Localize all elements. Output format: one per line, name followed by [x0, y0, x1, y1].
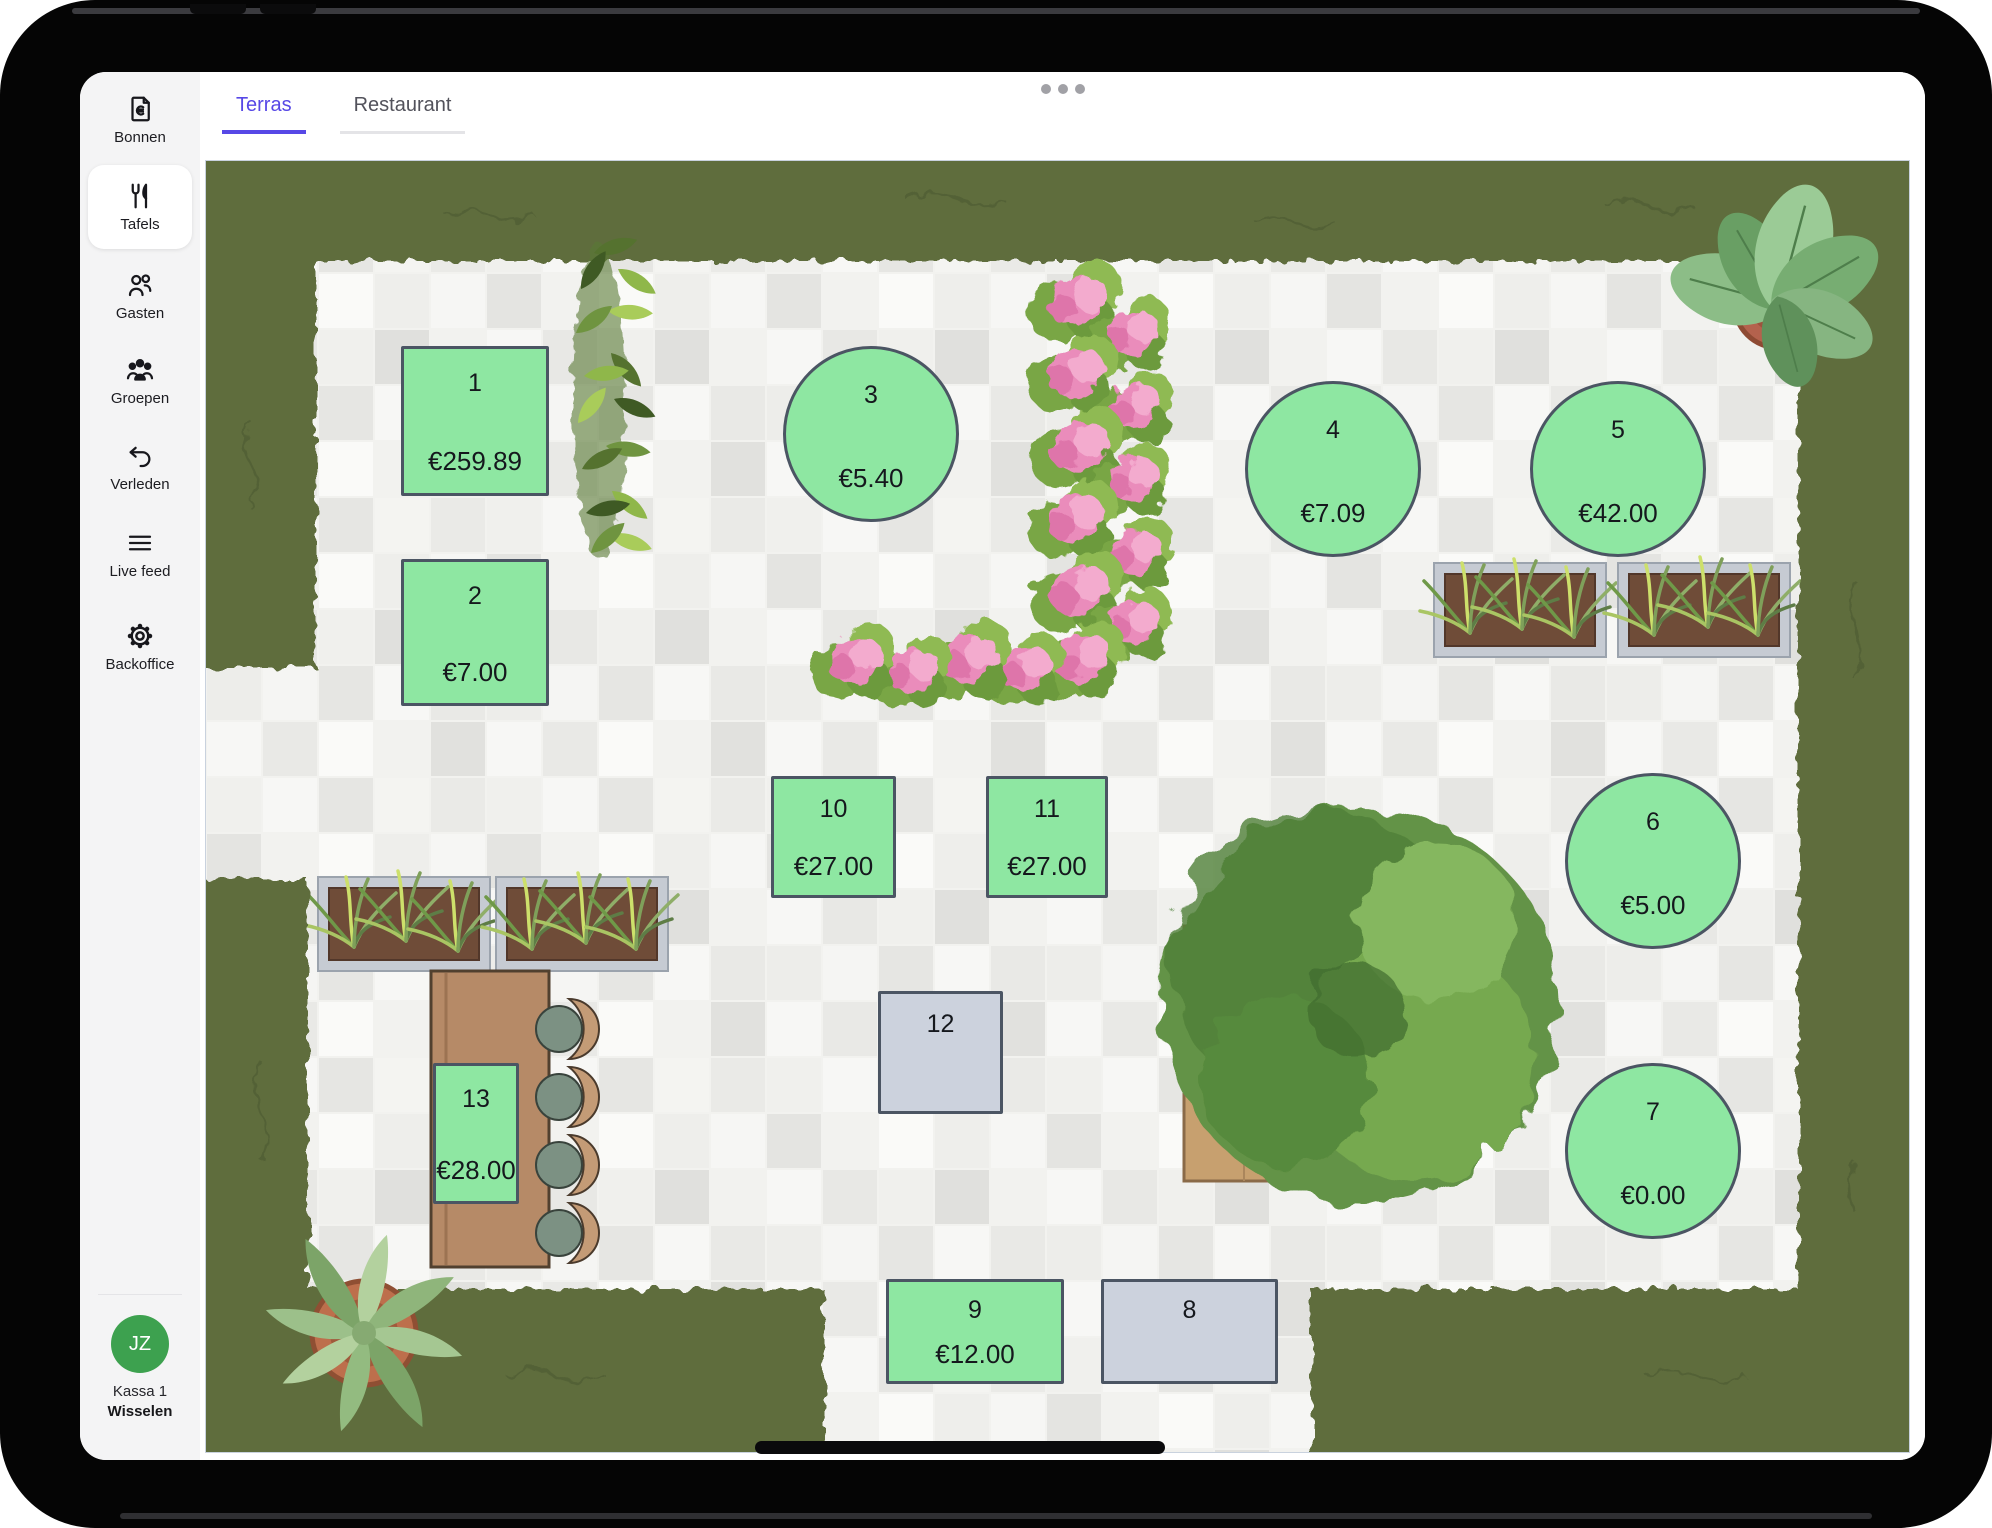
sidebar-item-label: Verleden [110, 476, 169, 493]
table-number: 2 [404, 582, 546, 611]
sidebar-nav: BonnenTafelsGastenGroepenVerledenLive fe… [80, 72, 200, 1460]
table-number: 7 [1568, 1098, 1738, 1127]
sidebar-item-bonnen[interactable]: Bonnen [88, 94, 192, 146]
table-amount: €0.00 [1568, 1180, 1738, 1211]
tablet-top-edge [72, 8, 1920, 14]
table-6[interactable]: 6€5.00 [1565, 773, 1741, 949]
table-amount: €7.00 [404, 657, 546, 688]
menu-icon [125, 528, 155, 558]
table-5[interactable]: 5€42.00 [1530, 381, 1706, 557]
table-amount: €27.00 [989, 851, 1105, 882]
tablet-bottom-edge [120, 1513, 1872, 1519]
tab-restaurant[interactable]: Restaurant [340, 94, 466, 134]
utensils-icon [125, 181, 155, 211]
table-number: 13 [436, 1085, 516, 1114]
table-number: 10 [774, 795, 893, 824]
table-number: 5 [1533, 416, 1703, 445]
table-4[interactable]: 4€7.09 [1245, 381, 1421, 557]
sidebar-item-backoffice[interactable]: Backoffice [88, 621, 192, 673]
sidebar-item-livefeed[interactable]: Live feed [88, 528, 192, 580]
avatar[interactable]: JZ [111, 1315, 169, 1373]
tab-bar: TerrasRestaurant [222, 94, 465, 134]
table-1[interactable]: 1€259.89 [401, 346, 549, 496]
sidebar-item-tafels[interactable]: Tafels [88, 165, 192, 249]
table-12[interactable]: 12 [878, 991, 1003, 1114]
sidebar-item-verleden[interactable]: Verleden [88, 441, 192, 493]
switch-user-button[interactable]: Wisselen [80, 1403, 200, 1420]
ellipsis-icon[interactable] [1041, 84, 1085, 94]
table-number: 11 [989, 795, 1105, 824]
sidebar-item-label: Gasten [116, 305, 164, 322]
sidebar-divider [98, 1294, 182, 1295]
users-icon [125, 270, 155, 300]
table-number: 3 [786, 381, 956, 410]
table-number: 12 [881, 1010, 1000, 1039]
home-indicator-bar[interactable] [755, 1441, 1165, 1454]
sidebar-item-label: Live feed [110, 563, 171, 580]
table-amount: €259.89 [404, 446, 546, 477]
sidebar-item-groepen[interactable]: Groepen [88, 355, 192, 407]
table-amount: €28.00 [436, 1155, 516, 1186]
app-screen: BonnenTafelsGastenGroepenVerledenLive fe… [80, 72, 1925, 1460]
sidebar-item-gasten[interactable]: Gasten [88, 270, 192, 322]
table-number: 8 [1104, 1296, 1275, 1325]
tablet-button [260, 4, 316, 14]
table-amount: €27.00 [774, 851, 893, 882]
user-name: Kassa 1 [80, 1383, 200, 1400]
table-amount: €5.00 [1568, 890, 1738, 921]
table-amount: €12.00 [889, 1339, 1061, 1370]
table-10[interactable]: 10€27.00 [771, 776, 896, 898]
table-8[interactable]: 8 [1101, 1279, 1278, 1384]
table-number: 9 [889, 1296, 1061, 1325]
main-area: TerrasRestaurant [200, 72, 1925, 1460]
sidebar-item-label: Groepen [111, 390, 169, 407]
users-group-icon [125, 355, 155, 385]
sidebar-item-label: Tafels [120, 216, 159, 233]
undo-icon [125, 441, 155, 471]
table-7[interactable]: 7€0.00 [1565, 1063, 1741, 1239]
table-9[interactable]: 9€12.00 [886, 1279, 1064, 1384]
table-number: 4 [1248, 416, 1418, 445]
sidebar-user: JZ Kassa 1 Wisselen [80, 1294, 200, 1420]
tables-layer: 1€259.892€7.003€5.404€7.095€42.006€5.007… [206, 161, 1909, 1452]
sidebar-item-label: Backoffice [106, 656, 175, 673]
table-number: 6 [1568, 808, 1738, 837]
tab-terras[interactable]: Terras [222, 94, 306, 134]
table-11[interactable]: 11€27.00 [986, 776, 1108, 898]
sidebar-item-label: Bonnen [114, 129, 166, 146]
table-amount: €7.09 [1248, 498, 1418, 529]
table-2[interactable]: 2€7.00 [401, 559, 549, 706]
tablet-button [190, 4, 246, 14]
table-amount: €5.40 [786, 463, 956, 494]
gear-icon [125, 621, 155, 651]
table-number: 1 [404, 369, 546, 398]
table-13[interactable]: 13€28.00 [433, 1063, 519, 1204]
floor-plan: 1€259.892€7.003€5.404€7.095€42.006€5.007… [205, 160, 1910, 1453]
receipt-euro-icon [125, 94, 155, 124]
table-amount: €42.00 [1533, 498, 1703, 529]
tablet-frame: BonnenTafelsGastenGroepenVerledenLive fe… [0, 0, 1992, 1528]
table-3[interactable]: 3€5.40 [783, 346, 959, 522]
